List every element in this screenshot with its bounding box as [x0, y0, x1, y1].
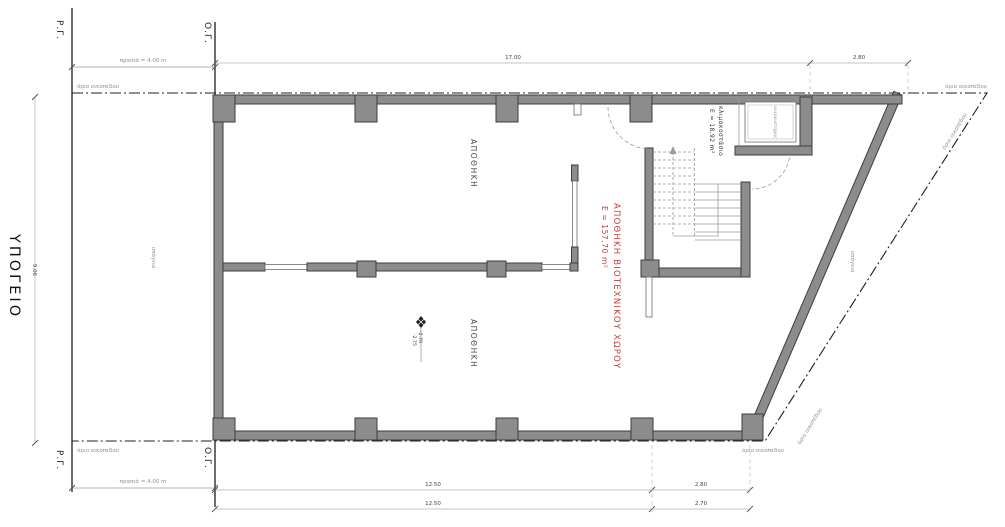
- boundary-label-diagonal-upper: όριο οικοπέδου: [941, 112, 969, 151]
- note-basement-left: υπόγειο: [150, 247, 157, 269]
- corner-column-southeast: [742, 414, 763, 440]
- elevator-shaft: ανελκυστήρας: [735, 97, 812, 155]
- column: [357, 261, 376, 277]
- room-label-industrial-storage-title: ΑΠΟΘΗΚΗ ΒΙΟΤΕΧΝΙΚΟΥ ΧΩΡΟΥ: [611, 203, 621, 369]
- diagonal-east-wall: [749, 91, 902, 432]
- interior-partition: [223, 165, 578, 277]
- stairwell-east-wall: [741, 182, 750, 277]
- room-label-storage-lower: ΑΠΟΘΗΚΗ: [469, 319, 478, 368]
- partition-window: [265, 265, 307, 270]
- partition-window: [542, 265, 570, 270]
- room-label-staircase-title: κλιμακοστάσιο: [717, 106, 724, 156]
- boundary-label-diagonal-lower: όριο οικοπέδου: [796, 407, 824, 446]
- wall-below-stair: [646, 277, 652, 317]
- floor-plan-canvas: Ρ.Γ. Ο.Γ. Ρ.Γ. Ο.Γ. πρασιά = 4.00 m πρασ…: [0, 0, 1005, 527]
- room-label-storage-upper: ΑΠΟΘΗΚΗ: [469, 139, 478, 188]
- column: [355, 418, 377, 440]
- og-label-bottom: Ο.Γ.: [202, 447, 212, 469]
- south-wall: [214, 431, 757, 440]
- site-reference-lines: Ρ.Γ. Ο.Γ. Ρ.Γ. Ο.Γ.: [54, 8, 215, 507]
- dim-left-height: 9.06: [31, 264, 37, 277]
- elevator-car: [745, 102, 796, 142]
- column: [496, 95, 518, 122]
- stairwell-west-wall: [645, 148, 653, 262]
- stairwell-south-wall: [659, 268, 750, 277]
- column: [355, 95, 377, 122]
- partition-segment: [506, 263, 542, 271]
- partition-segment: [307, 263, 360, 271]
- column: [213, 418, 235, 440]
- rg-label-bottom: Ρ.Γ.: [54, 450, 64, 470]
- thin-wall-cap: [572, 247, 579, 263]
- note-basement-right: υπόγειο: [849, 251, 856, 273]
- partition-segment: [376, 263, 487, 271]
- dim-top-right-width: 2.80: [853, 55, 866, 61]
- column: [630, 95, 652, 122]
- level-marker: -2.70 -2.75: [411, 316, 426, 362]
- room-label-staircase-area: E = 18.92 m²: [708, 109, 715, 154]
- boundary-label-bottom-right: όριο οικοπέδου: [742, 447, 784, 454]
- north-wall: [215, 95, 902, 104]
- drawing-title: ΥΠΟΓΕΙΟ: [6, 233, 22, 319]
- wall-stub: [574, 104, 581, 115]
- column: [487, 261, 506, 277]
- column: [631, 418, 653, 440]
- stair-direction-arrow: [670, 146, 677, 154]
- partition-end: [570, 263, 578, 271]
- setback-label-bottom: πρασιά = 4.00 m: [120, 478, 167, 485]
- stair-treads-dashed: [653, 148, 695, 236]
- dim-bottom1-main: 12.50: [425, 482, 441, 488]
- level-value-lower: -2.75: [411, 334, 417, 346]
- elevator-label: ανελκυστήρας: [772, 106, 779, 139]
- dim-bottom2-right: 2.70: [695, 501, 708, 507]
- boundary-label-bottom-left: όριο οικοπέδου: [77, 447, 119, 454]
- boundary-label-top-left: όριο οικοπέδου: [77, 83, 119, 90]
- door-swing-arc-elevator: [752, 151, 790, 189]
- west-wall: [214, 95, 223, 440]
- thin-wall-cap: [572, 165, 579, 181]
- setback-label-top: πρασιά = 4.00 m: [120, 57, 167, 64]
- stairwell-column: [641, 260, 659, 277]
- dim-bottom1-right: 2.80: [695, 482, 708, 488]
- partition-segment: [223, 263, 265, 271]
- room-label-industrial-storage-area: E = 157.70 m²: [600, 206, 609, 269]
- floor-plan-page: Ρ.Γ. Ο.Γ. Ρ.Γ. Ο.Γ. πρασιά = 4.00 m πρασ…: [0, 0, 1005, 527]
- setback-dimensions: πρασιά = 4.00 m πρασιά = 4.00 m: [69, 57, 218, 491]
- elevator-south-wall: [735, 146, 812, 155]
- dim-top-width: 17.00: [505, 55, 521, 61]
- level-value-upper: -2.70: [417, 331, 423, 343]
- thin-wall-glazing: [573, 181, 578, 247]
- boundary-label-top-right: όριο οικοπέδου: [945, 83, 987, 90]
- dim-bottom2-main: 12.50: [425, 501, 441, 507]
- column: [496, 418, 518, 440]
- og-label-top: Ο.Γ.: [202, 22, 212, 44]
- column: [213, 95, 235, 122]
- rg-label-top: Ρ.Γ.: [54, 20, 64, 40]
